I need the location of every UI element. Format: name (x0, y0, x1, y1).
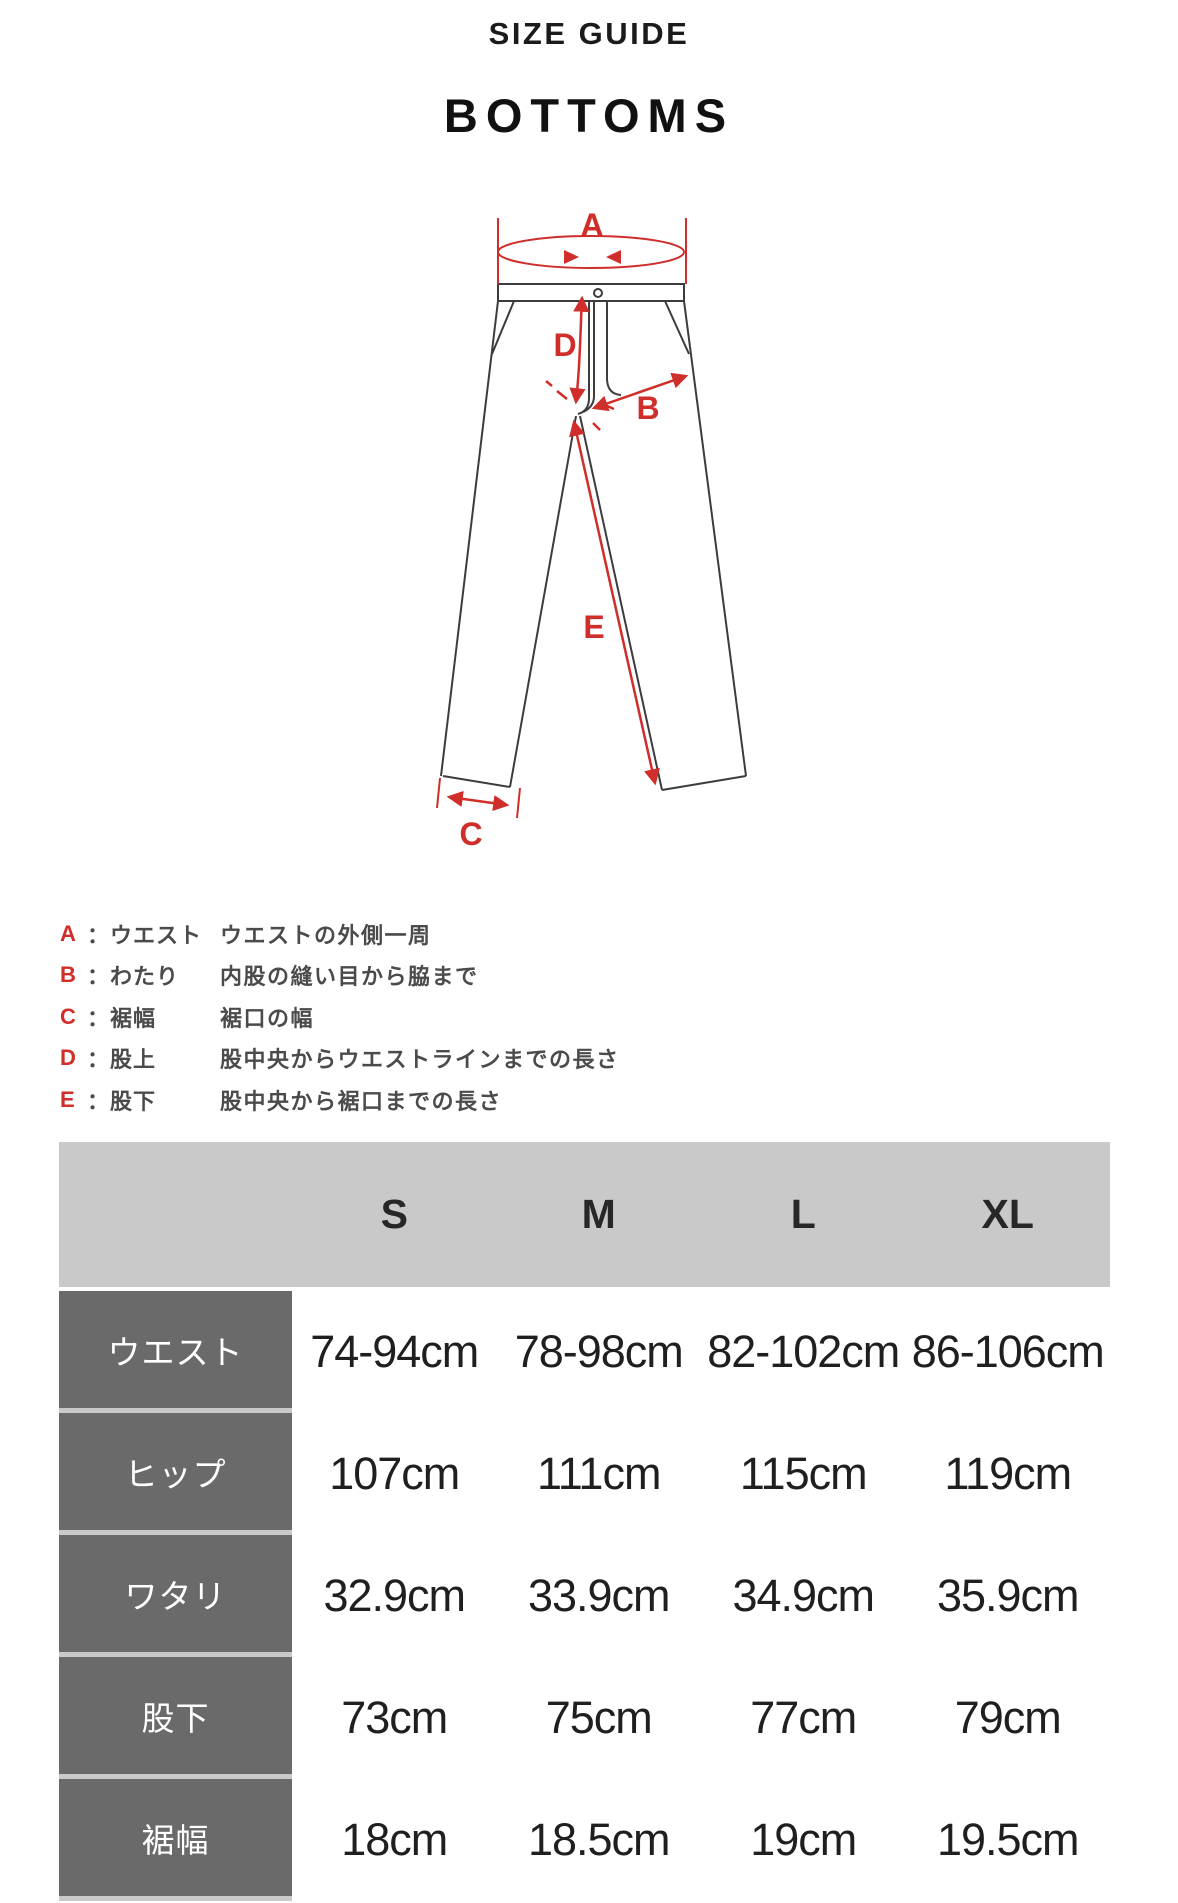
size-table: S M L XL ウエスト 74-94cm 78-98cm 82-102cm 8… (59, 1142, 1110, 1901)
column-header-l: L (701, 1142, 906, 1287)
legend-colon: ： (87, 1001, 110, 1033)
cell-value: 19.5cm (906, 1779, 1111, 1901)
cell-value: 18.5cm (497, 1779, 702, 1901)
left-inner-seam (510, 416, 576, 787)
table-row-waist: ウエスト 74-94cm 78-98cm 82-102cm 86-106cm (59, 1291, 1110, 1413)
cell-value: 19cm (701, 1779, 906, 1901)
a-arrowhead-left (606, 250, 621, 264)
c-extension-left (437, 778, 440, 808)
table-row-hem-width: 裾幅 18cm 18.5cm 19cm 19.5cm (59, 1779, 1110, 1901)
legend-term: 股上 (110, 1042, 220, 1074)
legend-letter: E (60, 1087, 87, 1113)
cell-value: 34.9cm (701, 1535, 906, 1657)
legend-item-a: A：ウエストウエストの外側一周 (60, 913, 620, 955)
legend-term: ウエスト (110, 918, 220, 950)
right-hem (662, 776, 746, 790)
column-header-s: S (292, 1142, 497, 1287)
measure-c-label: C (459, 816, 482, 852)
row-label: 裾幅 (59, 1779, 292, 1901)
page-subtitle: BOTTOMS (0, 88, 1178, 143)
legend-term: 裾幅 (110, 1001, 220, 1033)
cell-value: 111cm (497, 1413, 702, 1535)
cell-value: 86-106cm (906, 1291, 1111, 1413)
c-extension-right (517, 788, 520, 818)
size-table-header: S M L XL (59, 1142, 1110, 1287)
cell-value: 119cm (906, 1413, 1111, 1535)
table-row-inseam: 股下 73cm 75cm 77cm 79cm (59, 1657, 1110, 1779)
table-row-hip: ヒップ 107cm 111cm 115cm 119cm (59, 1413, 1110, 1535)
pants-diagram-svg: A D B E C (0, 150, 1178, 862)
column-header-xl: XL (906, 1142, 1111, 1287)
measure-a-label: A (580, 207, 603, 243)
legend-letter: C (60, 1004, 87, 1030)
cell-value: 82-102cm (701, 1291, 906, 1413)
column-header-m: M (497, 1142, 702, 1287)
cell-value: 79cm (906, 1657, 1111, 1779)
cell-value: 18cm (292, 1779, 497, 1901)
row-label: ウエスト (59, 1291, 292, 1413)
waist-button (594, 289, 602, 297)
cell-value: 75cm (497, 1657, 702, 1779)
page-title: SIZE GUIDE (0, 16, 1178, 52)
cell-value: 115cm (701, 1413, 906, 1535)
measure-e-arrow (574, 422, 655, 783)
legend-desc: 裾口の幅 (220, 1001, 314, 1033)
pants-outline (441, 284, 746, 790)
legend-letter: D (60, 1045, 87, 1071)
cell-value: 78-98cm (497, 1291, 702, 1413)
a-arrowhead-right (564, 250, 579, 264)
cell-value: 73cm (292, 1657, 497, 1779)
right-outer-seam (684, 301, 746, 776)
legend-colon: ： (87, 1084, 110, 1116)
cell-value: 33.9cm (497, 1535, 702, 1657)
legend-colon: ： (87, 1042, 110, 1074)
measure-b-label: B (636, 390, 659, 426)
measurement-legend: A：ウエストウエストの外側一周 B：わたり内股の縫い目から脇まで C：裾幅裾口の… (60, 913, 620, 1121)
legend-desc: 内股の縫い目から脇まで (220, 959, 479, 991)
cell-value: 107cm (292, 1413, 497, 1535)
cell-value: 35.9cm (906, 1535, 1111, 1657)
row-label: ワタリ (59, 1535, 292, 1657)
legend-item-d: D：股上股中央からウエストラインまでの長さ (60, 1038, 620, 1080)
table-row-thigh: ワタリ 32.9cm 33.9cm 34.9cm 35.9cm (59, 1535, 1110, 1657)
cell-value: 74-94cm (292, 1291, 497, 1413)
cell-value: 32.9cm (292, 1535, 497, 1657)
measure-d-arrow (576, 298, 582, 402)
legend-item-b: B：わたり内股の縫い目から脇まで (60, 955, 620, 997)
measure-d-label: D (553, 327, 576, 363)
waistband (498, 284, 684, 301)
legend-letter: A (60, 921, 87, 947)
legend-desc: 股中央から裾口までの長さ (220, 1084, 502, 1116)
legend-term: わたり (110, 959, 220, 991)
pants-measurement-diagram: A D B E C (0, 150, 1178, 862)
fly-stitch (607, 301, 621, 395)
legend-term: 股下 (110, 1084, 220, 1116)
measure-c-arrow (437, 778, 520, 818)
legend-desc: 股中央からウエストラインまでの長さ (220, 1042, 620, 1074)
measure-e-label: E (583, 609, 604, 645)
row-label: 股下 (59, 1657, 292, 1779)
right-inner-seam (580, 416, 662, 790)
left-hem (443, 776, 510, 787)
cell-value: 77cm (701, 1657, 906, 1779)
header-spacer (59, 1142, 292, 1287)
legend-desc: ウエストの外側一周 (220, 918, 432, 950)
legend-colon: ： (87, 918, 110, 950)
left-outer-seam (441, 301, 498, 776)
row-label: ヒップ (59, 1413, 292, 1535)
legend-item-c: C：裾幅裾口の幅 (60, 996, 620, 1038)
legend-item-e: E：股下股中央から裾口までの長さ (60, 1079, 620, 1121)
legend-colon: ： (87, 959, 110, 991)
legend-letter: B (60, 962, 87, 988)
